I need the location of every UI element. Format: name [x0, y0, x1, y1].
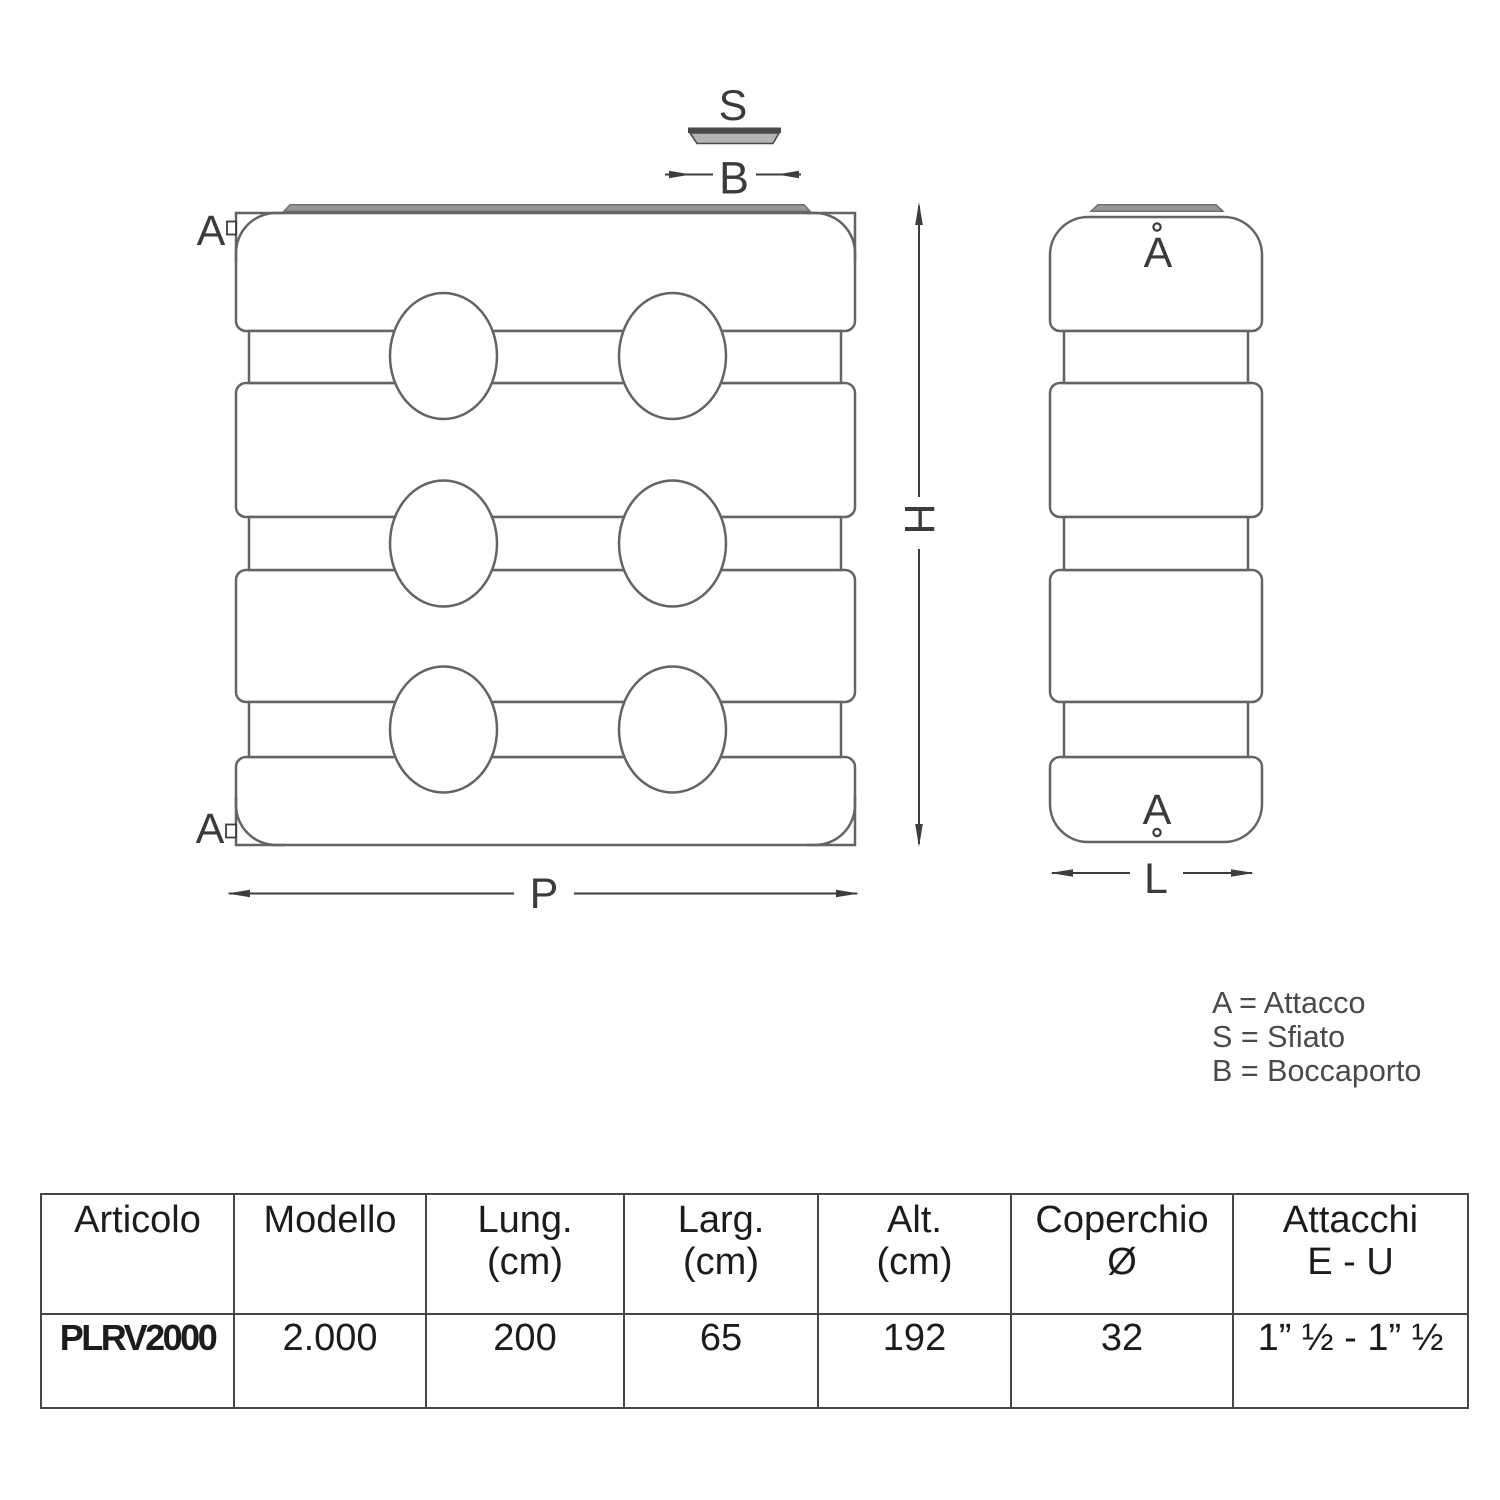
svg-text:A: A: [196, 805, 225, 853]
svg-text:H: H: [895, 503, 943, 534]
svg-text:A: A: [1143, 786, 1172, 834]
svg-text:A: A: [1144, 229, 1173, 277]
svg-text:S: S: [719, 82, 748, 130]
svg-text:S = Sfiato: S = Sfiato: [1212, 1020, 1345, 1054]
svg-text:P: P: [530, 870, 559, 918]
svg-text:A = Attacco: A = Attacco: [1212, 986, 1365, 1020]
svg-text:A: A: [197, 207, 226, 255]
svg-text:B: B: [719, 153, 749, 204]
svg-text:B = Boccaporto: B = Boccaporto: [1212, 1054, 1421, 1088]
svg-text:L: L: [1144, 855, 1168, 903]
